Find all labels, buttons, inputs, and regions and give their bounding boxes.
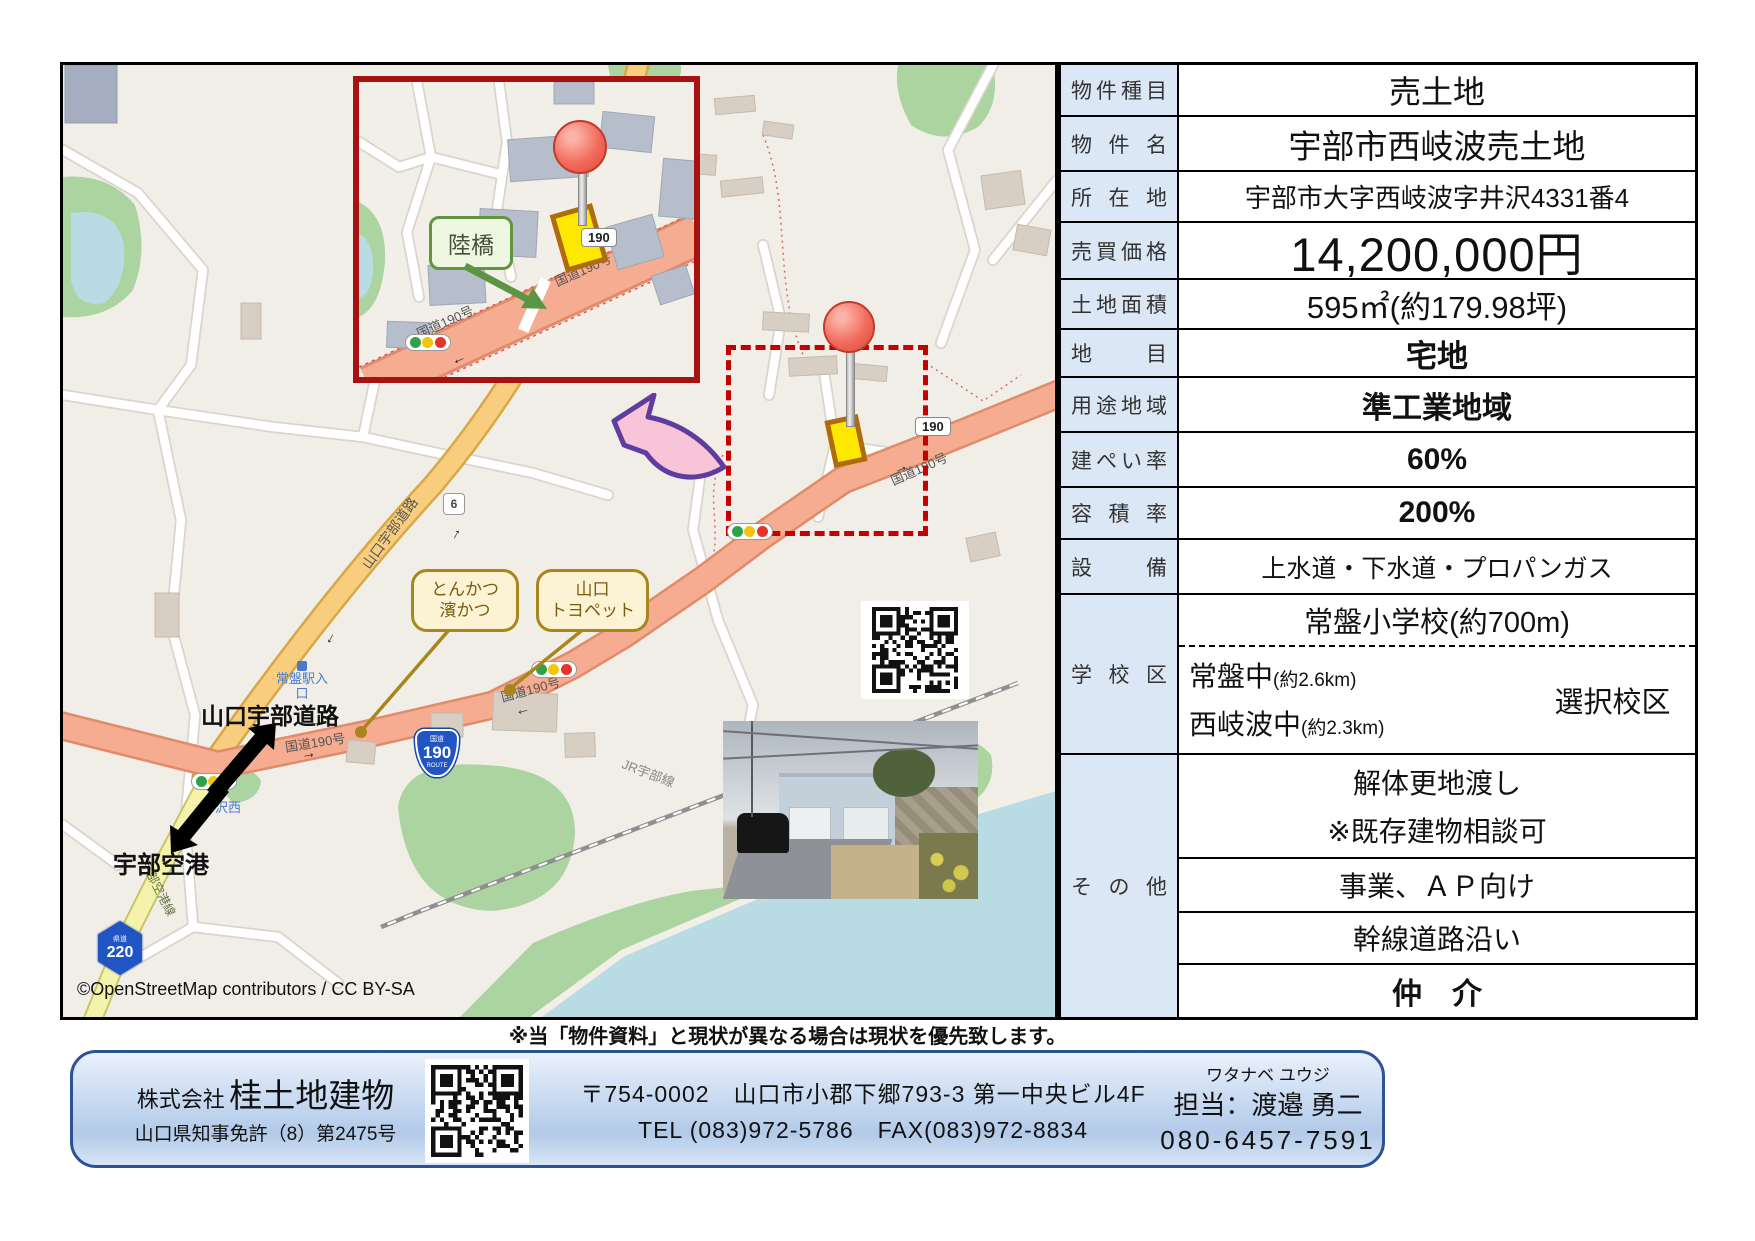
row-label-cell: 物件名 [1061,117,1179,170]
route190-shield-route-word: ROUTE [417,763,457,769]
row-label-cell: 所在地 [1061,172,1179,221]
other-demolition: 解体更地渡し [1353,762,1521,802]
row-label-cell: 物件種目 [1061,65,1179,115]
route190-white-shield: 190 [915,417,951,436]
junior-high-2-distance: (約2.3km) [1301,718,1384,739]
footer-qr-pattern [431,1065,523,1157]
inset-base-svg [359,82,694,377]
table-row-other: その他 解体更地渡し ※既存建物相談可 事業、ＡＰ向け 幹線道路沿い 仲 介 [1061,755,1695,1017]
inset-route190-shield-text: 190 [588,230,610,245]
value-property-type: 売土地 [1179,65,1695,115]
route220-number: 220 [107,944,134,962]
route6-shield: 6 [443,493,465,515]
label-land-area: 土地面積 [1071,289,1167,319]
company-address: 〒754-0002 山口市小郡下郷793-3 第一中央ビル4F [543,1075,1183,1109]
row-label-cell: 土地面積 [1061,280,1179,328]
row-label-cell: 地目 [1061,330,1179,376]
bubble-leader-lines [355,623,591,738]
table-row: 物件種目売土地 [1061,65,1695,117]
company-name-block: 株式会社 桂土地建物 [98,1069,433,1117]
value-land-area: 595㎡(約179.98坪) [1179,280,1695,328]
property-photo [723,721,978,899]
ube-airport-label: 宇部空港 [113,845,209,880]
zoom-callout-arrow [608,393,733,491]
map-attribution: ©OpenStreetMap contributors / CC BY-SA [77,979,415,1000]
row-label-cell: 学校区 [1061,595,1179,753]
label-utilities: 設備 [1071,552,1167,582]
other-existing-building-note: ※既存建物相談可 [1327,810,1546,850]
route190-white-shield-text: 190 [922,419,944,434]
license-number: 山口県知事免許（8）第2475号 [98,1119,433,1146]
other-brokerage: 仲 介 [1179,965,1695,1017]
junior-high-list: 常盤中(約2.6km) 西岐波中(約2.3km) [1179,652,1530,747]
yamaguchi-ube-road-label: 山口宇部道路 [201,697,339,731]
table-row: 容積率200% [1061,488,1695,540]
inset-pin-stick [578,170,587,226]
inset-forest [359,202,385,317]
map-qr-code [861,601,969,699]
bubble-toyopet-line2: トヨペット [550,601,635,621]
label-price: 売買価格 [1071,236,1167,266]
table-row: 用途地域準工業地域 [1061,378,1695,433]
value-floor-area-ratio: 200% [1179,488,1695,538]
route220-kendo-text: 県道 [113,934,127,944]
row-label-cell: 用途地域 [1061,378,1179,431]
other-main-road: 幹線道路沿い [1179,913,1695,965]
school-choice-note: 選択校区 [1530,679,1695,721]
junior-high-1: 常盤中(約2.6km) [1189,652,1530,702]
flyer-page: { "page": { "disclaimer": "※当「物件資料」と現状が異… [0,0,1755,1241]
route220-pref-shield: 県道 220 [95,921,145,975]
junior-high-2-name: 西岐波中 [1189,709,1301,740]
overpass-arrow [459,262,554,317]
value-property-name: 宇部市西岐波売土地 [1179,117,1695,170]
value-utilities: 上水道・下水道・プロパンガス [1179,540,1695,593]
table-row: 土地面積595㎡(約179.98坪) [1061,280,1695,330]
table-row: 物件名宇部市西岐波売土地 [1061,117,1695,172]
map-inset-zoom: 陸橋 190 国道190号 国道190号 → ← [353,76,700,383]
other-cell: 解体更地渡し ※既存建物相談可 事業、ＡＰ向け 幹線道路沿い 仲 介 [1179,755,1695,1017]
label-zoning: 用途地域 [1071,390,1167,420]
company-prefix: 株式会社 [137,1087,225,1112]
row-label-cell: 設備 [1061,540,1179,593]
row-label-cell: 容積率 [1061,488,1179,538]
value-zoning: 準工業地域 [1179,378,1695,431]
map-pin-stick [846,349,855,427]
other-subrow-1: 解体更地渡し ※既存建物相談可 [1179,755,1695,859]
map-pin [823,301,875,353]
inset-traffic-light-icon [405,334,451,351]
row-label-cell: その他 [1061,755,1179,1017]
bubble-toyopet-line1: 山口 [576,580,610,600]
table-row: 売買価格14,200,000円 [1061,223,1695,280]
label-address: 所在地 [1071,182,1167,212]
bubble-tonkatsu-hamakatsu: とんかつ 濱かつ [411,569,519,632]
value-address: 宇部市大字西岐波字井沢4331番4 [1179,172,1695,221]
table-row: 地目宅地 [1061,330,1695,378]
junior-high-2: 西岐波中(約2.3km) [1189,703,1530,748]
agent-phone: 080-6457-7591 [1158,1125,1378,1156]
route190-shield-kokudo: 国道 [417,736,457,743]
company-tel-fax: TEL (083)972-5786 FAX(083)972-8834 [543,1111,1183,1145]
footer-qr-code [425,1059,529,1163]
junior-high-block: 常盤中(約2.6km) 西岐波中(約2.3km) 選択校区 [1179,647,1695,753]
disclaimer-text: ※当「物件資料」と現状が異なる場合は現状を優先致します。 [60,1020,1515,1049]
label-other: その他 [1071,871,1167,901]
overpass-label-text: 陸橋 [448,226,494,260]
value-building-coverage: 60% [1179,433,1695,486]
route190-shield-number: 190 [417,744,457,761]
row-label-cell: 建ぺい率 [1061,433,1179,486]
school-district-cell: 常盤小学校(約700m) 常盤中(約2.6km) 西岐波中(約2.3km) 選択… [1179,595,1695,753]
property-spec-table: 物件種目売土地 物件名宇部市西岐波売土地 所在地宇部市大字西岐波字井沢4331番… [1058,62,1698,1020]
junior-high-1-name: 常盤中 [1189,661,1273,692]
footer-company-bar: 株式会社 桂土地建物 山口県知事免許（8）第2475号 〒754-0002 山口… [70,1050,1385,1168]
label-property-name: 物件名 [1071,129,1167,159]
bubble-tonkatsu-line1: とんかつ [431,580,499,600]
label-building-coverage: 建ぺい率 [1071,445,1167,475]
map-panel: 陸橋 190 国道190号 国道190号 → ← とんかつ 濱かつ 山口 トヨペ… [60,62,1058,1020]
photo-car [737,813,789,853]
company-name: 桂土地建物 [229,1077,394,1114]
inset-route190-shield: 190 [581,228,617,247]
label-floor-area-ratio: 容積率 [1071,498,1167,528]
inset-pin [553,120,607,174]
row-label-cell: 売買価格 [1061,223,1179,278]
label-school-district: 学校区 [1071,659,1167,689]
bubble-tonkatsu-line2: 濱かつ [440,601,491,621]
value-land-category: 宅地 [1179,330,1695,376]
photo-utility-pole [751,721,753,817]
label-property-type: 物件種目 [1071,75,1167,105]
table-row: 設備上水道・下水道・プロパンガス [1061,540,1695,595]
route6-number: 6 [451,497,458,511]
table-row: 建ぺい率60% [1061,433,1695,488]
elementary-school: 常盤小学校(約700m) [1179,595,1695,647]
value-price: 14,200,000円 [1179,223,1695,278]
label-land-category: 地目 [1071,338,1167,368]
map-qr-pattern [872,607,958,693]
junior-high-1-distance: (約2.6km) [1273,670,1356,691]
agent-name: 担当：渡邉 勇二 [1158,1085,1378,1122]
agent-kana: ワタナベ ユウジ [1158,1061,1378,1086]
other-business-use: 事業、ＡＰ向け [1179,859,1695,913]
bubble-yamaguchi-toyopet: 山口 トヨペット [536,569,649,632]
photo-weeds [919,833,978,899]
photo-power-line-2 [723,744,978,759]
table-row-school-district: 学校区 常盤小学校(約700m) 常盤中(約2.6km) 西岐波中(約2.3km… [1061,595,1695,755]
airport-direction-arrows [170,723,276,853]
